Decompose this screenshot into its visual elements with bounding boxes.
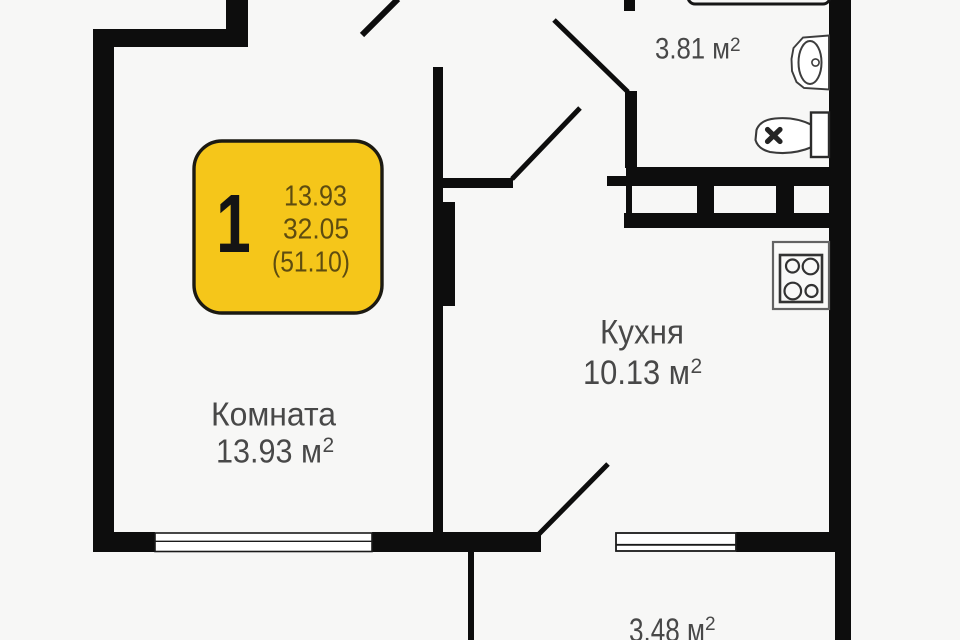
svg-text:(51.10): (51.10) bbox=[272, 247, 350, 279]
svg-text:13.93: 13.93 bbox=[284, 181, 347, 213]
svg-text:2: 2 bbox=[323, 434, 335, 457]
svg-text:1: 1 bbox=[216, 177, 251, 270]
svg-text:3.81 м: 3.81 м bbox=[655, 33, 730, 66]
svg-text:2: 2 bbox=[730, 35, 741, 56]
svg-text:Кухня: Кухня bbox=[600, 314, 684, 352]
svg-text:2: 2 bbox=[705, 614, 716, 635]
svg-text:32.05: 32.05 bbox=[283, 214, 349, 246]
svg-text:13.93 м: 13.93 м bbox=[216, 433, 322, 470]
svg-text:10.13 м: 10.13 м bbox=[583, 354, 690, 392]
svg-text:3.48 м: 3.48 м bbox=[629, 612, 705, 640]
svg-text:Комната: Комната bbox=[211, 396, 337, 433]
svg-text:2: 2 bbox=[691, 355, 703, 378]
